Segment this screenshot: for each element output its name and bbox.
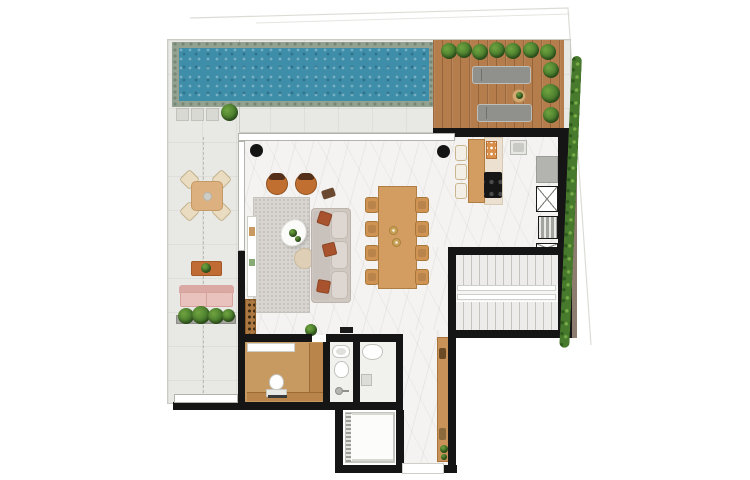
paver	[206, 108, 219, 121]
planter-bush	[222, 309, 235, 322]
console-item	[249, 259, 255, 266]
deck-bush	[540, 44, 556, 60]
dining-chair	[415, 197, 429, 213]
elevator-rail	[346, 413, 351, 462]
paver	[191, 108, 204, 121]
sideboard-plant	[440, 445, 448, 453]
console-item	[249, 227, 255, 236]
terrace-railing	[174, 394, 238, 403]
outdoor-sofa-seam	[206, 293, 207, 306]
elevator-rail	[352, 459, 393, 461]
deck-bush	[543, 62, 559, 78]
paver	[176, 108, 189, 121]
deck-bush	[489, 42, 505, 58]
glass-wall-living-left	[238, 141, 245, 251]
wine-rack	[245, 299, 256, 338]
pool	[179, 48, 429, 101]
dining-chair	[365, 221, 379, 237]
toilet	[334, 361, 349, 378]
wall-elevator-right	[396, 410, 404, 465]
wc-shelf	[361, 374, 372, 386]
wall-bath-top-right	[326, 334, 403, 342]
deck-bush	[456, 42, 472, 58]
table-plant	[201, 263, 211, 273]
sofa-back-cushion	[331, 271, 348, 299]
shower-hose	[342, 390, 349, 392]
sofa-back-cushion	[331, 211, 348, 239]
ac-grille	[538, 216, 558, 239]
dining-chair	[415, 221, 429, 237]
service-shaft	[536, 186, 558, 212]
refrigerator	[536, 156, 558, 183]
wall-living-left	[238, 250, 245, 407]
pendant-light	[389, 226, 398, 235]
dining-chair	[365, 197, 379, 213]
toilet-mat	[268, 395, 287, 398]
wall-stairs-left	[448, 247, 456, 473]
sideboard-object	[439, 428, 446, 440]
cooktop	[484, 172, 502, 198]
glass-wall-living-top	[238, 133, 455, 141]
washbasin-bowl	[336, 348, 346, 355]
wall-elevator-left	[335, 410, 343, 473]
wall-wc-corridor	[396, 342, 403, 402]
bar-stool	[455, 145, 467, 161]
planter-bush	[221, 104, 238, 121]
sink-basin	[513, 143, 524, 152]
floor-vent	[340, 327, 353, 333]
elevator-rail	[352, 413, 393, 415]
dining-chair	[415, 245, 429, 261]
round-armchair	[295, 173, 317, 195]
dining-chair	[365, 245, 379, 261]
table-plant	[295, 236, 301, 242]
deck-bush	[541, 84, 560, 103]
sun-lounger	[477, 104, 532, 122]
staircase-upper-flight	[455, 255, 558, 285]
staircase-lower-flight	[455, 302, 558, 330]
table-plant	[516, 92, 523, 99]
wall-bath-top-left	[245, 334, 312, 342]
sun-lounger	[472, 66, 531, 84]
pendant-light	[392, 238, 401, 247]
staircase-landing-edge	[457, 285, 556, 291]
sideboard-plant	[441, 454, 447, 460]
powder-shelf	[247, 343, 295, 352]
wall-bottom-main	[173, 402, 403, 410]
wall-powder-bath	[323, 342, 330, 402]
structural-column	[437, 145, 450, 158]
elevator-car	[345, 412, 395, 463]
deck-bush	[472, 44, 488, 60]
wall-bath-wc	[353, 342, 360, 402]
table-plate	[203, 192, 212, 201]
deck-bush	[505, 43, 521, 59]
cutting-board	[486, 141, 497, 159]
bar-stool	[455, 183, 467, 199]
round-armchair	[266, 173, 288, 195]
dining-chair	[415, 269, 429, 285]
structural-column	[250, 144, 263, 157]
deck-bush	[441, 43, 457, 59]
floor-plan	[0, 0, 750, 480]
wall-stairs-bottom	[448, 330, 570, 338]
wall-stairs-top	[449, 247, 558, 255]
staircase-landing-edge	[457, 294, 556, 300]
sideboard-object	[439, 348, 446, 359]
corridor-door	[402, 463, 444, 474]
toilet	[269, 374, 284, 390]
deck-bush	[523, 42, 539, 58]
kitchen-island	[468, 139, 485, 203]
throw-pillow	[316, 279, 331, 294]
toilet	[362, 344, 383, 360]
deck-bush	[543, 107, 559, 123]
bar-stool	[455, 164, 467, 180]
dining-chair	[365, 269, 379, 285]
